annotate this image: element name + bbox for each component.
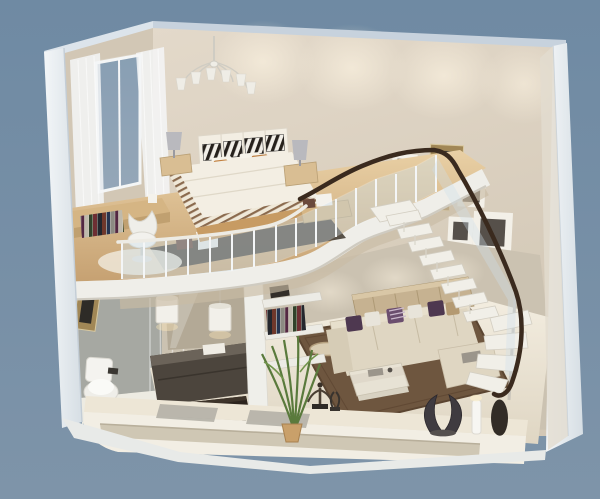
chandelier-body [210,61,218,67]
render-canvas: 3D cutaway loft apartment floor plan ren… [0,0,600,499]
window-sheer [99,53,141,193]
toilet-button [108,367,119,374]
pendant-glow [209,331,231,339]
pendant-shade [209,306,231,331]
plant-pot [282,424,302,442]
pendant-glow [156,323,178,331]
table-lamp [166,132,182,150]
apartment-cutaway [44,20,583,474]
table-decor [388,368,393,373]
shelf-books [266,305,306,335]
desk-cup [148,194,157,203]
table-lamp [292,140,308,160]
apartment-cutaway-render: 3D cutaway loft apartment floor plan ren… [0,0,600,499]
candle-glow [470,395,482,402]
